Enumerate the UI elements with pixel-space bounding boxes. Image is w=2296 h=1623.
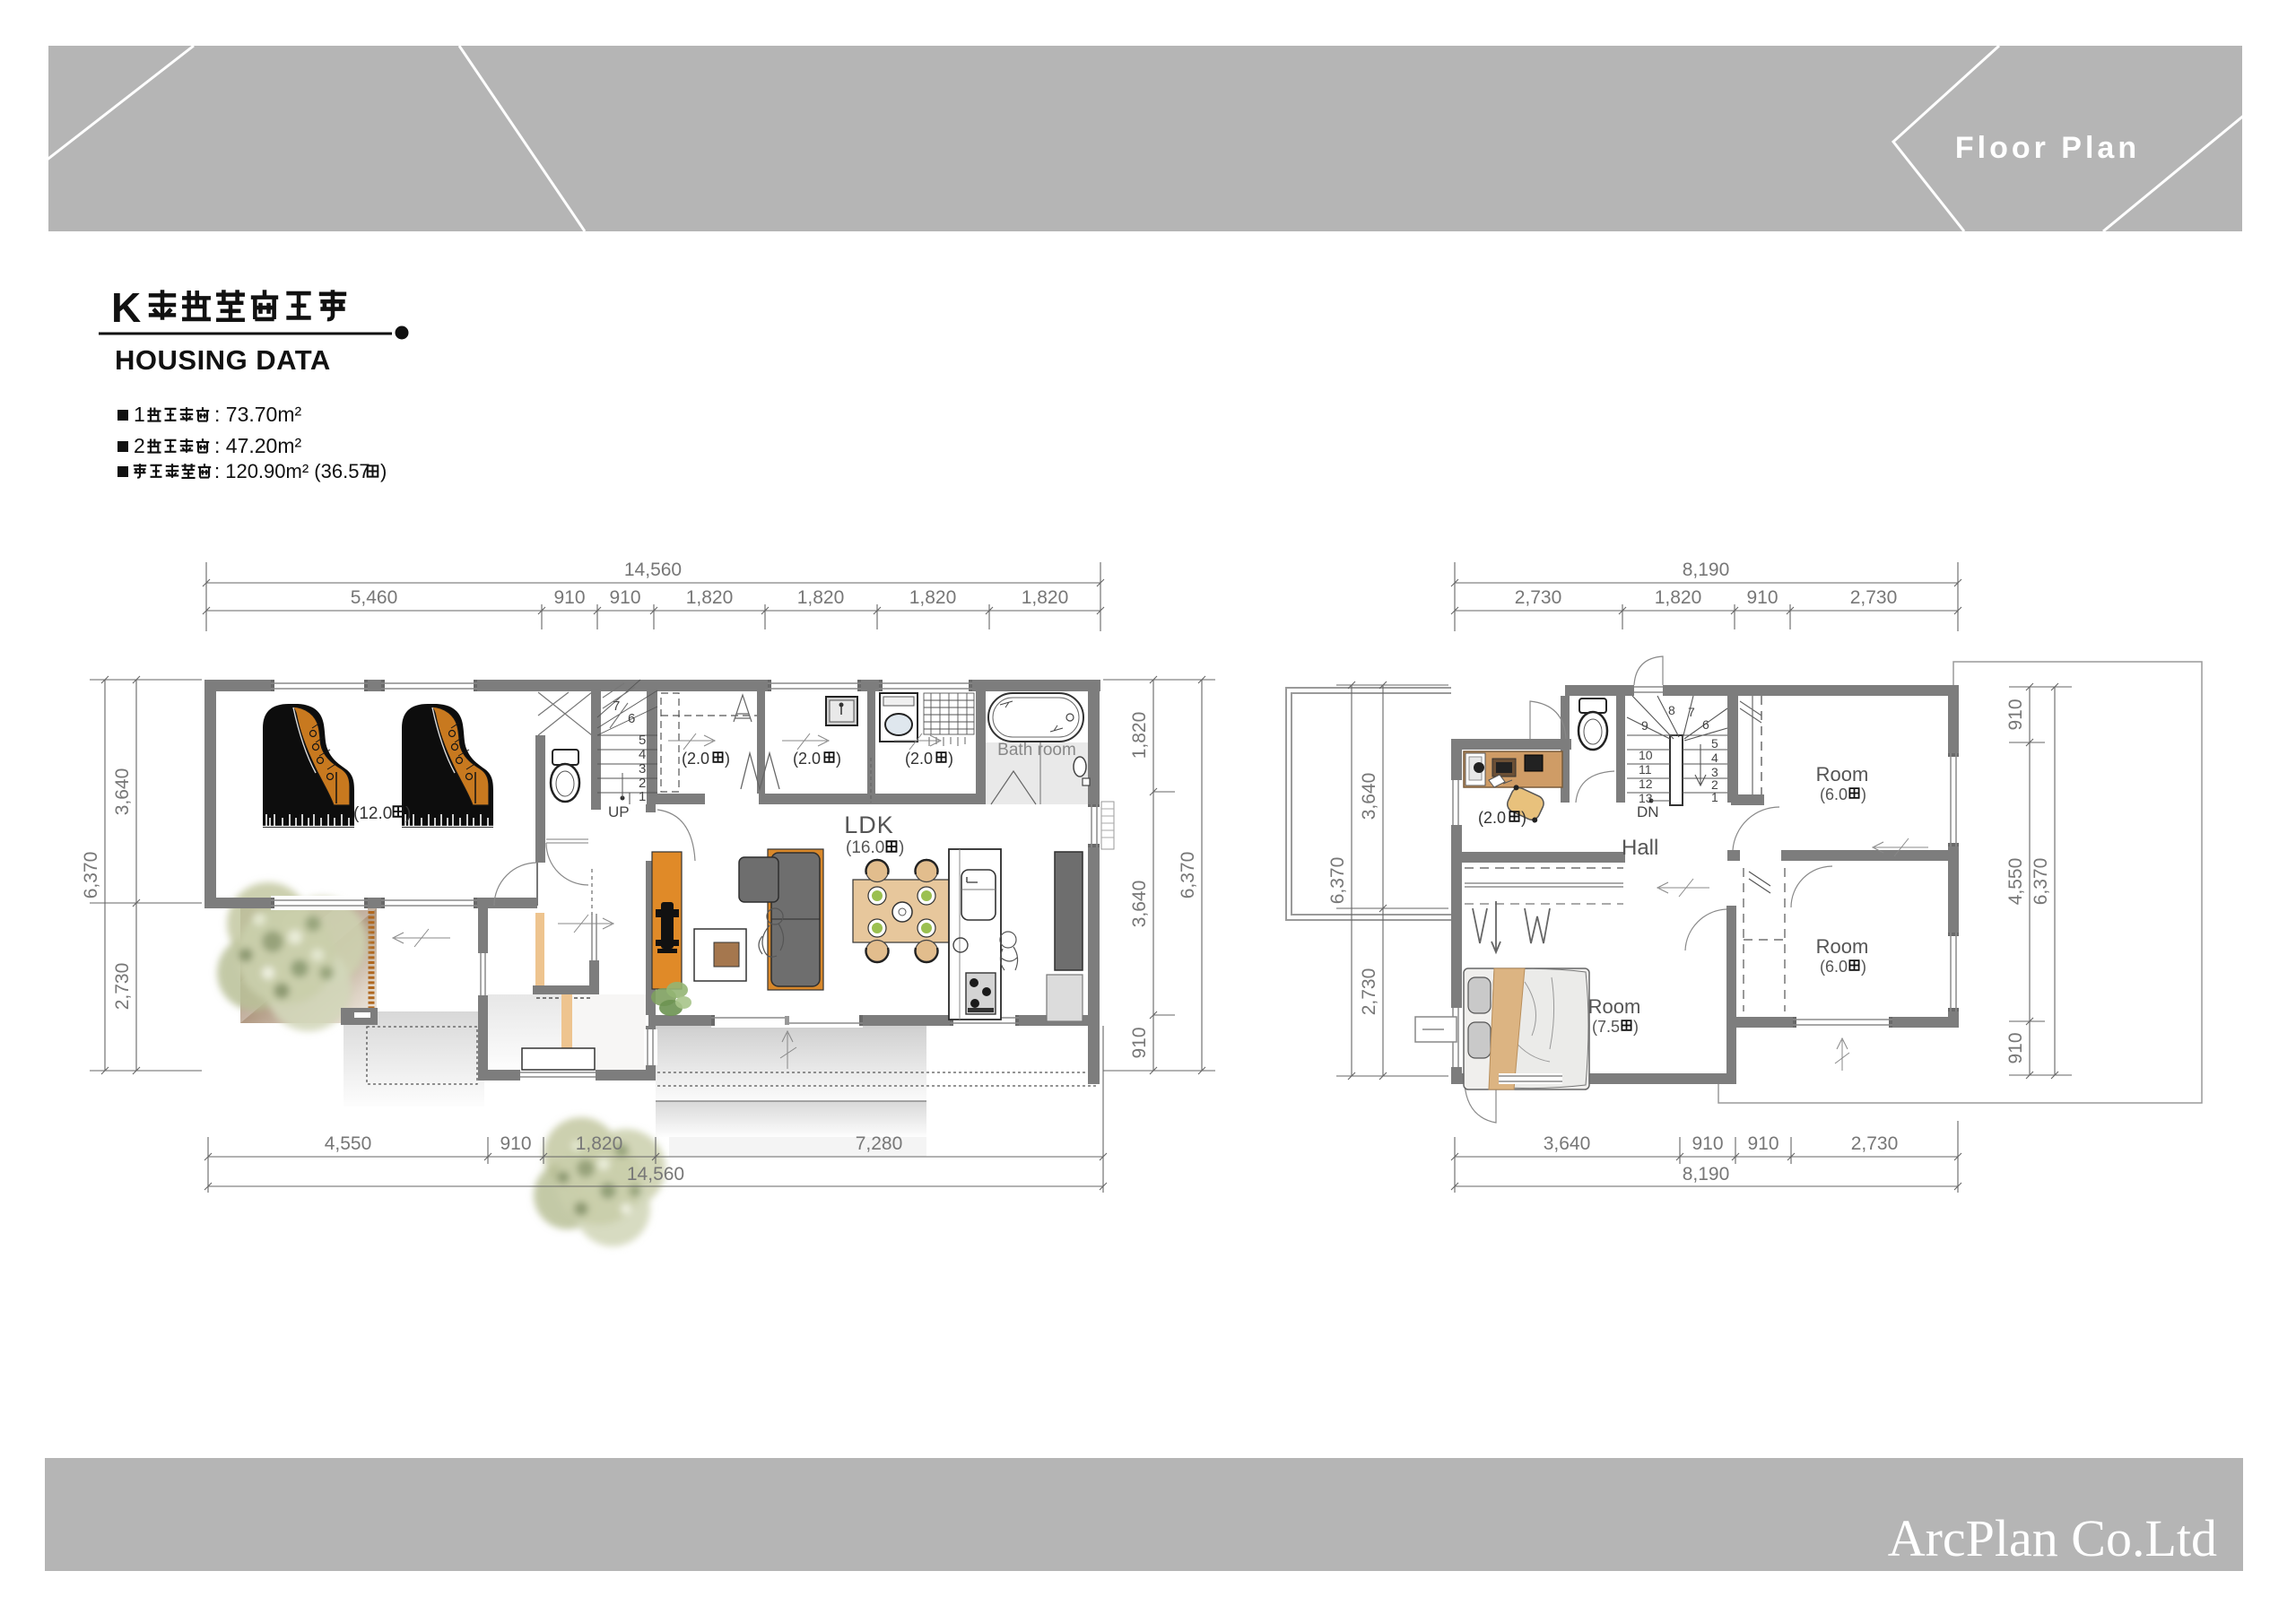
svg-text:2,730: 2,730 <box>1850 587 1898 608</box>
svg-text:3: 3 <box>639 761 646 777</box>
svg-text:(6.0: (6.0 <box>1820 958 1848 976</box>
svg-text:): ) <box>405 804 411 823</box>
svg-text:): ) <box>1861 785 1866 803</box>
svg-text:12: 12 <box>1639 777 1653 791</box>
svg-text:): ) <box>899 838 904 857</box>
svg-text:910: 910 <box>1129 1027 1150 1058</box>
svg-text:Room: Room <box>1588 995 1641 1018</box>
svg-text:(7.5: (7.5 <box>1592 1018 1620 1036</box>
svg-text:1,820: 1,820 <box>1129 712 1150 759</box>
svg-text:): ) <box>1633 1018 1639 1036</box>
svg-text:9: 9 <box>1641 718 1648 733</box>
svg-text:1,820: 1,820 <box>1022 587 1069 608</box>
svg-text:14,560: 14,560 <box>624 560 682 580</box>
svg-text:HOUSING DATA: HOUSING DATA <box>115 344 331 376</box>
svg-text:LDK: LDK <box>844 811 894 838</box>
svg-text:): ) <box>725 750 730 768</box>
svg-text:6: 6 <box>1702 717 1709 732</box>
svg-text:Bath room: Bath room <box>997 741 1076 759</box>
svg-text:8,190: 8,190 <box>1683 560 1730 580</box>
svg-text:Hall: Hall <box>1622 836 1658 860</box>
svg-text:: 73.70m²: : 73.70m² <box>214 403 301 426</box>
svg-text:(2.0: (2.0 <box>1478 809 1506 827</box>
svg-text:2,730: 2,730 <box>112 963 133 1011</box>
svg-text:910: 910 <box>553 587 585 608</box>
svg-text:): ) <box>380 460 387 482</box>
svg-text:910: 910 <box>2005 1032 2026 1063</box>
svg-text:4,550: 4,550 <box>2005 858 2026 906</box>
svg-text:1,820: 1,820 <box>686 587 734 608</box>
svg-text:): ) <box>1861 958 1866 976</box>
svg-text:4: 4 <box>639 747 646 762</box>
svg-text:1,820: 1,820 <box>797 587 845 608</box>
svg-text:8,190: 8,190 <box>1683 1164 1730 1185</box>
svg-text:Room: Room <box>1816 763 1869 785</box>
svg-text:6: 6 <box>628 711 635 726</box>
svg-text:5: 5 <box>639 733 646 748</box>
svg-text:1: 1 <box>134 403 145 426</box>
svg-text:6,370: 6,370 <box>1178 852 1198 899</box>
svg-text:910: 910 <box>500 1133 531 1154</box>
svg-text:7,280: 7,280 <box>856 1133 903 1154</box>
svg-text:910: 910 <box>609 587 640 608</box>
svg-text:5: 5 <box>1711 736 1718 751</box>
svg-text:11: 11 <box>1639 762 1652 777</box>
svg-text:6,370: 6,370 <box>1327 857 1348 905</box>
svg-text:(6.0: (6.0 <box>1820 785 1848 803</box>
svg-text:1: 1 <box>1711 790 1718 804</box>
svg-text:4,550: 4,550 <box>325 1133 372 1154</box>
svg-text:10: 10 <box>1639 748 1653 762</box>
svg-text:: 120.90m² (36.57: : 120.90m² (36.57 <box>214 460 370 482</box>
svg-text:1,820: 1,820 <box>576 1133 623 1154</box>
svg-text:Floor Plan: Floor Plan <box>1955 131 2140 165</box>
svg-text:1: 1 <box>639 789 646 804</box>
svg-text:14,560: 14,560 <box>627 1164 684 1185</box>
svg-text:(2.0: (2.0 <box>905 750 933 768</box>
svg-text:(2.0: (2.0 <box>793 750 821 768</box>
svg-text:2: 2 <box>134 434 145 457</box>
svg-text:6,370: 6,370 <box>81 852 101 899</box>
svg-text:910: 910 <box>2005 699 2026 730</box>
svg-text:7: 7 <box>1688 705 1695 719</box>
svg-text:): ) <box>1521 809 1526 827</box>
svg-text:3,640: 3,640 <box>1544 1133 1591 1154</box>
svg-text:2,730: 2,730 <box>1359 968 1379 1016</box>
svg-text:5,460: 5,460 <box>351 587 398 608</box>
svg-text:910: 910 <box>1692 1133 1723 1154</box>
svg-text:910: 910 <box>1747 1133 1779 1154</box>
svg-text:2,730: 2,730 <box>1851 1133 1899 1154</box>
svg-text:UP: UP <box>608 803 630 820</box>
svg-text:3,640: 3,640 <box>1129 881 1150 928</box>
svg-text:K: K <box>111 284 141 331</box>
svg-text:(2.0: (2.0 <box>682 750 709 768</box>
svg-text:DN: DN <box>1637 803 1659 820</box>
svg-text:910: 910 <box>1746 587 1778 608</box>
svg-text:): ) <box>948 750 953 768</box>
svg-text:: 47.20m²: : 47.20m² <box>214 434 301 457</box>
svg-text:3,640: 3,640 <box>1359 773 1379 820</box>
svg-text:6,370: 6,370 <box>2031 858 2051 906</box>
svg-text:(12.0: (12.0 <box>353 804 392 823</box>
svg-text:Room: Room <box>1816 935 1869 958</box>
svg-text:(16.0: (16.0 <box>846 838 884 857</box>
svg-text:3,640: 3,640 <box>112 768 133 816</box>
svg-text:): ) <box>836 750 841 768</box>
svg-text:4: 4 <box>1711 751 1718 765</box>
svg-text:ArcPlan Co.Ltd: ArcPlan Co.Ltd <box>1888 1509 2217 1567</box>
svg-text:1,820: 1,820 <box>1655 587 1702 608</box>
svg-text:8: 8 <box>1668 703 1675 717</box>
svg-text:1,820: 1,820 <box>909 587 957 608</box>
svg-text:2,730: 2,730 <box>1515 587 1562 608</box>
